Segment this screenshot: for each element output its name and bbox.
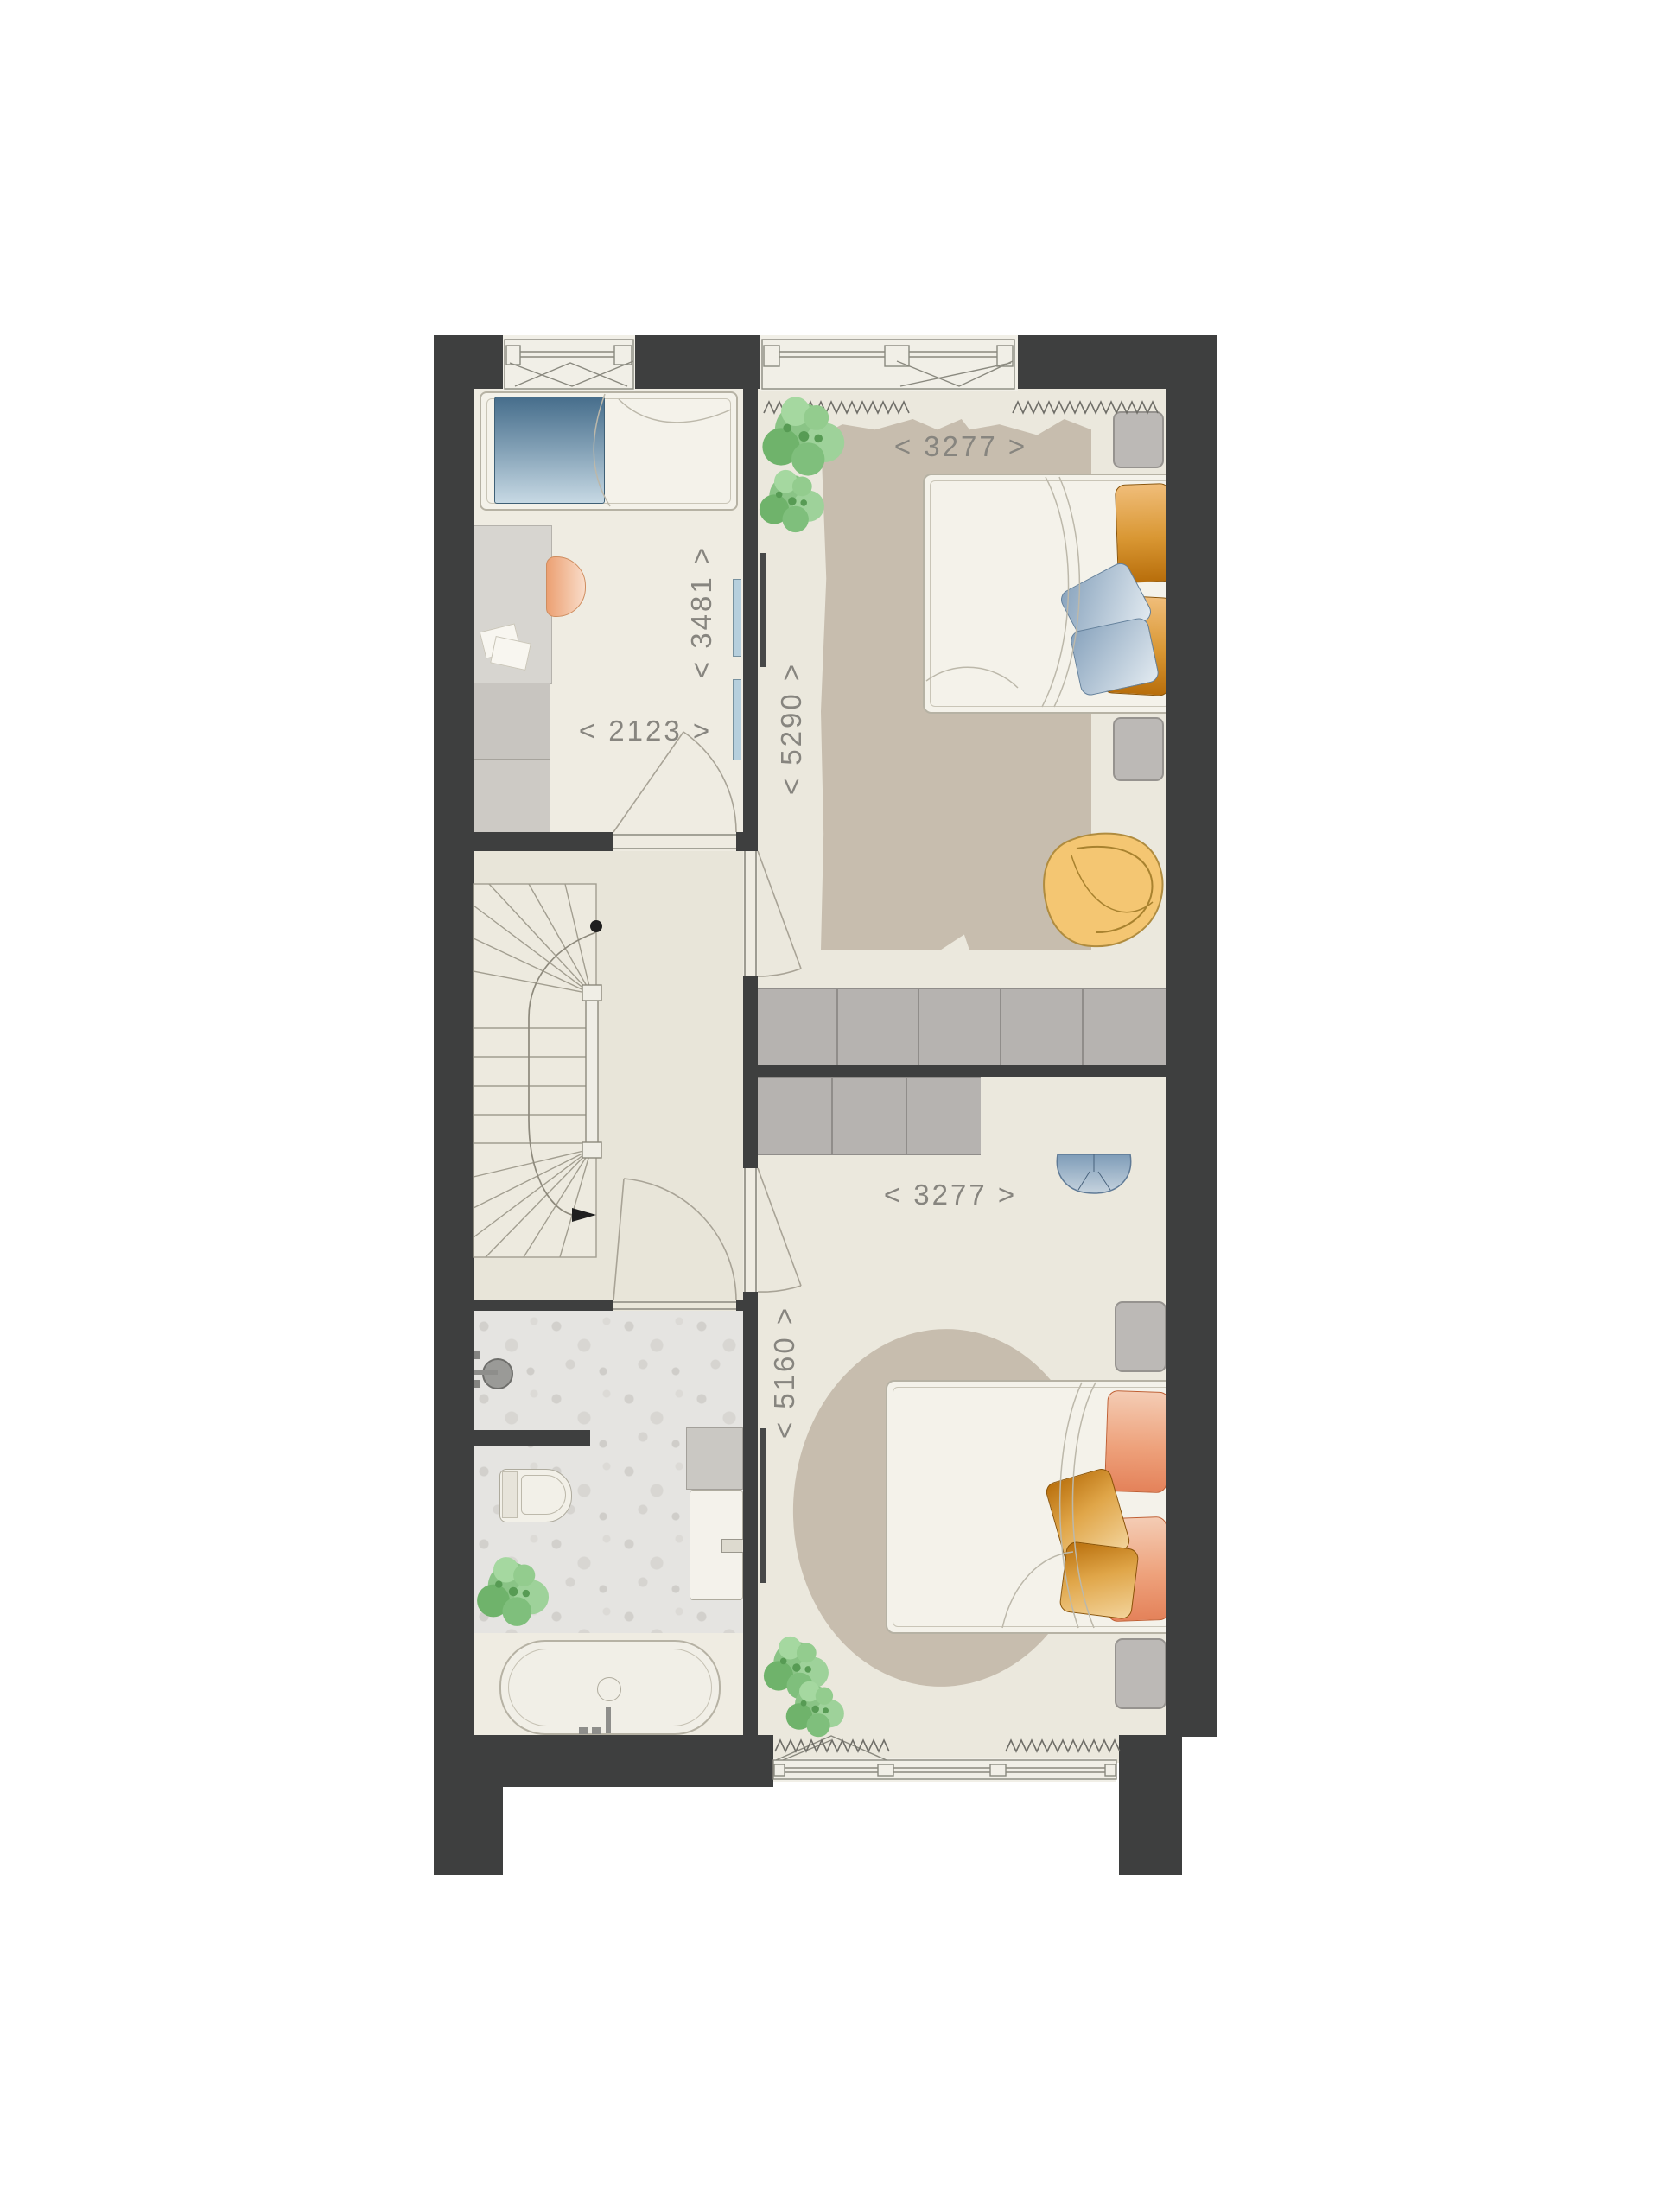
wall-bottom-right-leg bbox=[1119, 1735, 1182, 1875]
wall-hall-bathroom bbox=[474, 1300, 613, 1311]
wall-top-mid bbox=[635, 335, 760, 389]
toilet-cistern bbox=[502, 1471, 518, 1518]
bathtub-tap-knob bbox=[579, 1727, 588, 1734]
stair-floor bbox=[474, 884, 596, 1257]
dimension-label-left-room-width: < 2123 > bbox=[579, 715, 712, 747]
wall-left-room-bottom bbox=[474, 832, 613, 851]
wardrobe-row-top-bedroom bbox=[758, 988, 1166, 1068]
sliding-door-panel bbox=[760, 553, 766, 667]
wall-right bbox=[1166, 335, 1217, 1737]
bathtub-tap bbox=[606, 1707, 611, 1733]
wall-bottom-bathroom bbox=[434, 1735, 773, 1787]
wardrobe-divider bbox=[1082, 989, 1084, 1066]
window-recess-left bbox=[503, 335, 635, 391]
window-recess-bottom bbox=[773, 1758, 1116, 1782]
wall-hall-bathroom-stub bbox=[736, 1300, 743, 1311]
wardrobe-divider bbox=[918, 989, 919, 1066]
wall-between-bedrooms bbox=[758, 1065, 1166, 1077]
nightstand bbox=[1115, 1638, 1166, 1709]
bathtub-tap-knob bbox=[592, 1727, 601, 1734]
vanity-counter bbox=[686, 1427, 743, 1490]
wall-central-c bbox=[743, 1292, 758, 1735]
washbasin-faucet bbox=[721, 1539, 744, 1553]
nightstand bbox=[1115, 1301, 1166, 1372]
wall-left bbox=[434, 335, 474, 1735]
single-bed-duvet bbox=[494, 397, 605, 504]
shower-arm bbox=[474, 1370, 498, 1375]
wardrobe-row-bottom-bedroom bbox=[758, 1077, 981, 1155]
wardrobe-divider bbox=[831, 1078, 833, 1154]
interior-glazing-panel bbox=[733, 679, 741, 760]
cabinet bbox=[474, 759, 550, 835]
nightstand bbox=[1113, 411, 1164, 468]
left-room-door-threshold bbox=[613, 832, 736, 851]
wardrobe-divider bbox=[836, 989, 838, 1066]
dimension-label-left-room-depth: < 3481 > bbox=[685, 545, 718, 678]
bathroom-door-threshold bbox=[613, 1300, 736, 1311]
wall-left-room-bottom-stub bbox=[736, 832, 743, 851]
toilet bbox=[499, 1469, 572, 1522]
top-bedroom-door-threshold bbox=[743, 851, 758, 976]
interior-glazing-panel bbox=[733, 579, 741, 657]
dimension-label-top-bedroom-width: < 3277 > bbox=[894, 430, 1027, 463]
floor-plan-canvas: < 3277 > < 5290 > < 3481 > < 2123 > < 32… bbox=[0, 0, 1659, 2212]
wall-bottom-left-leg bbox=[434, 1780, 503, 1875]
cabinet bbox=[474, 683, 550, 760]
bottom-bedroom-door-threshold bbox=[743, 1168, 758, 1292]
bathtub-drain bbox=[597, 1677, 621, 1701]
salmon-pillow bbox=[1104, 1390, 1170, 1493]
toilet-seat bbox=[521, 1475, 566, 1515]
amber-throw-pillow bbox=[1058, 1541, 1139, 1620]
sliding-door-panel bbox=[760, 1428, 766, 1583]
nightstand bbox=[1113, 717, 1164, 781]
window-recess-right bbox=[760, 335, 1018, 391]
wardrobe-divider bbox=[906, 1078, 907, 1154]
washbasin bbox=[690, 1490, 743, 1600]
dimension-label-top-bedroom-depth: < 5290 > bbox=[775, 662, 808, 795]
wall-central-b bbox=[743, 976, 758, 1168]
wall-central-a bbox=[743, 389, 758, 851]
wall-shower-partition bbox=[434, 1430, 590, 1446]
dimension-label-bottom-bedroom-width: < 3277 > bbox=[884, 1179, 1017, 1211]
wardrobe-divider bbox=[1000, 989, 1001, 1066]
dimension-label-bottom-bedroom-depth: < 5160 > bbox=[768, 1306, 801, 1439]
